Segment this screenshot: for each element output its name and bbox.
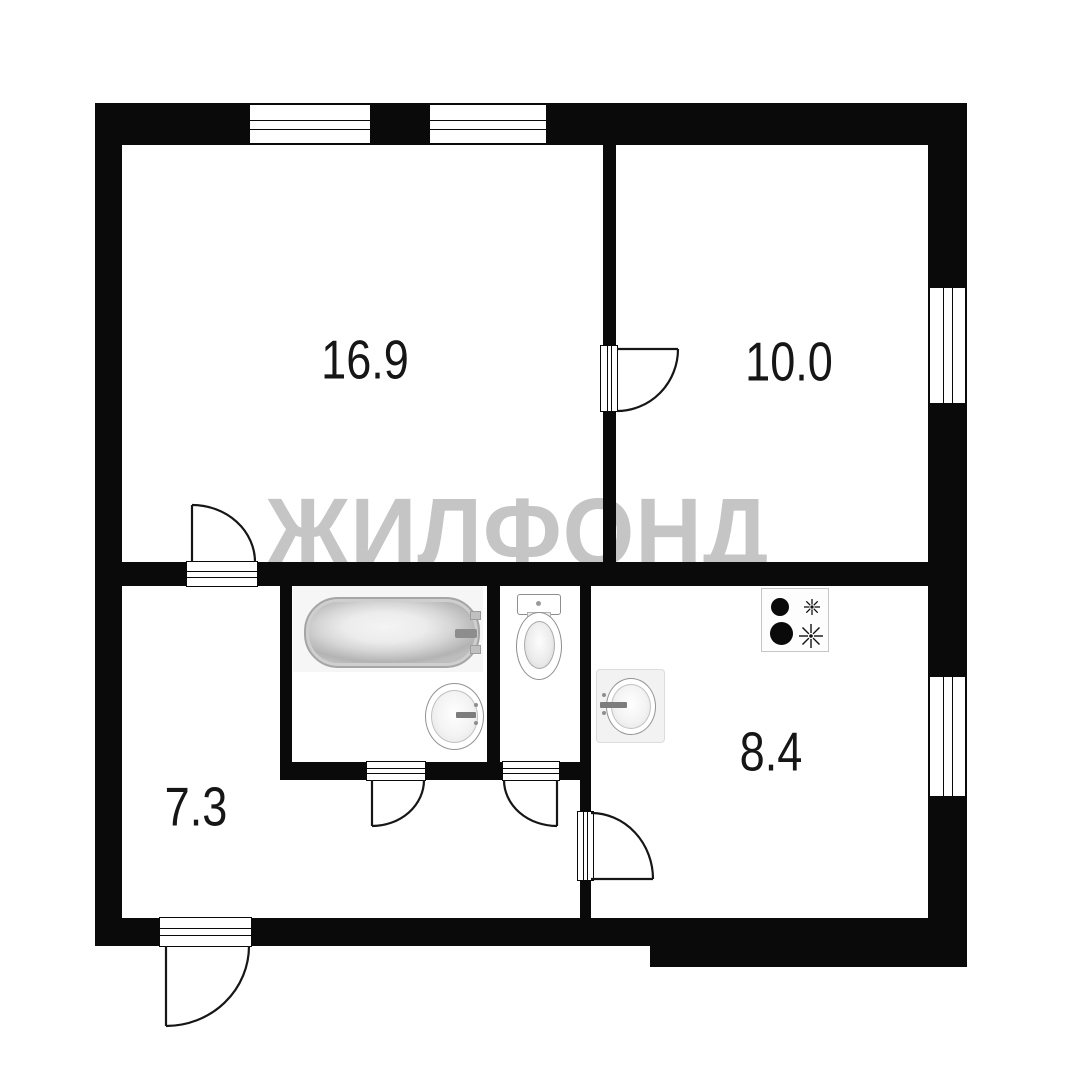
room-area-label: 16.9: [321, 333, 409, 388]
kitchen-sink-tap-icon: [602, 693, 606, 697]
window-right-lower: [928, 675, 967, 798]
wall-bathroom-left: [280, 586, 292, 780]
toilet-button-icon: [536, 601, 541, 606]
window-right-upper: [928, 286, 967, 405]
door-arc-bathroom: [372, 780, 424, 826]
door-arc-toilet: [504, 780, 557, 826]
sill-bathroom-door: [366, 761, 426, 781]
bathroom-sink-faucet-icon: [456, 712, 476, 718]
room-area-label: 8.4: [740, 725, 803, 780]
kitchen-sink-faucet-icon: [600, 702, 627, 708]
door-arc-kitchen: [591, 813, 653, 879]
stove-burner-dot-icon: [771, 598, 789, 616]
jamb-kitchen-door: [577, 811, 594, 881]
room-area-label: 7.3: [165, 780, 228, 835]
wall-left: [95, 103, 122, 946]
stove-burner-dot-icon: [770, 622, 793, 645]
floor-plan: ЖИЛФОНД: [0, 0, 1072, 1080]
bathtub-faucet-icon: [455, 629, 477, 638]
door-arc-entrance: [166, 946, 249, 1026]
jamb-room2-door: [600, 345, 618, 412]
bathtub-handle-icon: [470, 645, 481, 654]
sill-entrance-door: [159, 917, 252, 947]
room-area-label: 10.0: [745, 335, 833, 390]
sill-room1-door: [186, 561, 258, 587]
toilet-bowl-icon: [524, 621, 555, 669]
wall-right: [928, 103, 967, 967]
bathroom-sink-tap-icon: [474, 721, 478, 725]
door-arc-room2: [617, 349, 678, 411]
bathtub-handle-icon: [470, 611, 481, 620]
wall-bottom-right: [650, 918, 967, 967]
bathtub-icon: [304, 597, 480, 668]
window-top-left: [248, 103, 372, 145]
kitchen-sink-tap-icon: [602, 711, 606, 715]
door-arc-room1: [192, 505, 255, 562]
stove-icon: [761, 588, 829, 652]
window-top-right: [428, 103, 548, 145]
wall-bathroom-toilet: [487, 586, 500, 780]
sill-toilet-door: [502, 761, 560, 781]
bathroom-sink-tap-icon: [474, 703, 478, 707]
